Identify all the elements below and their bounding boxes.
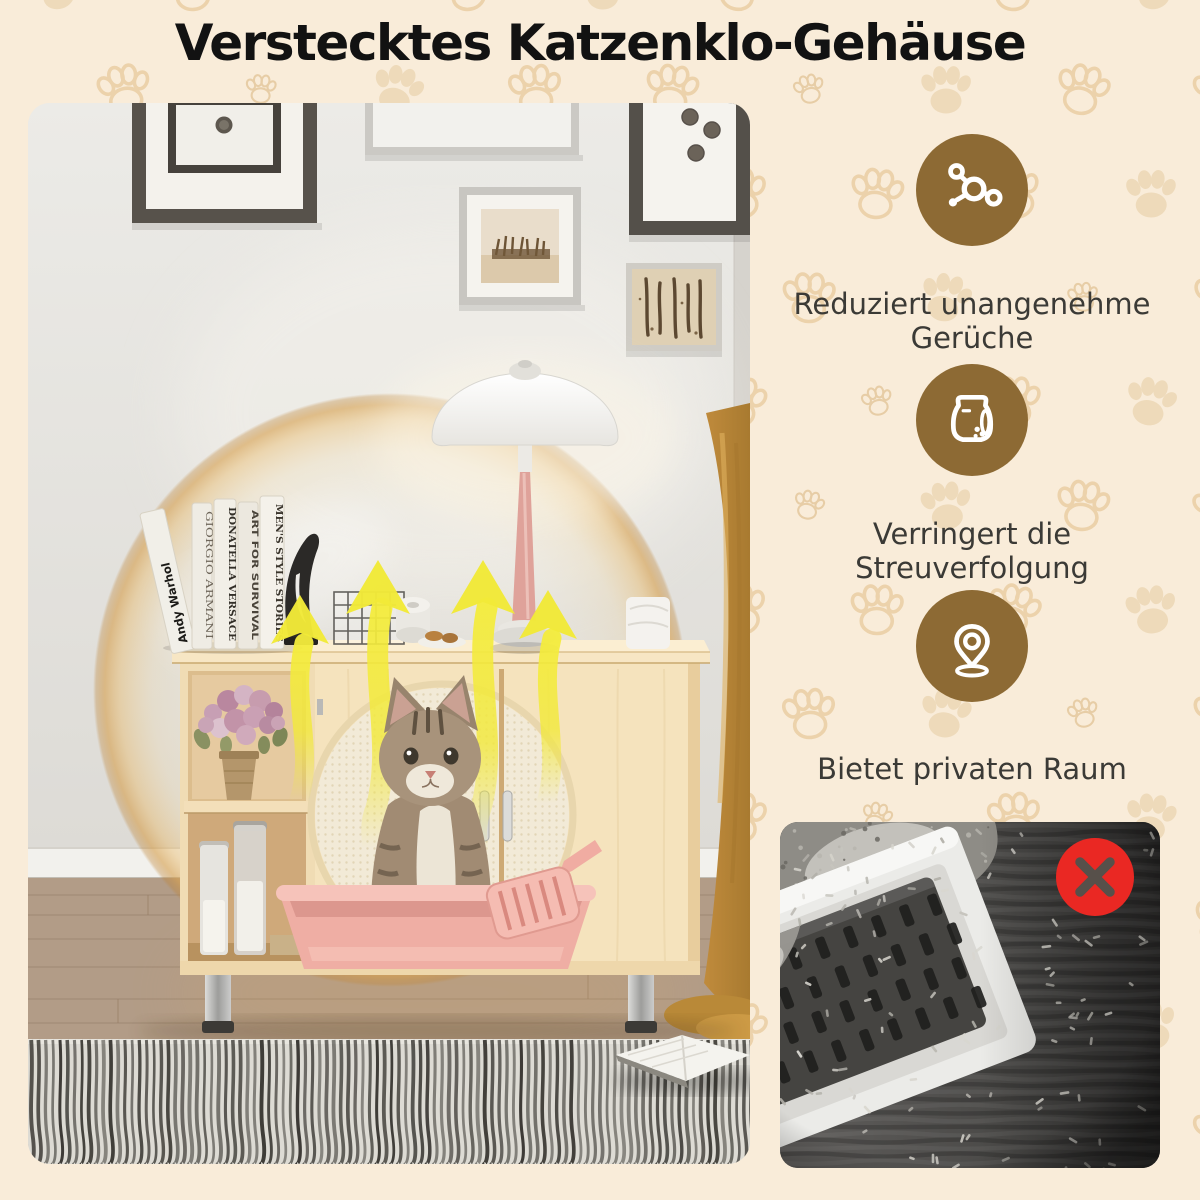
litter-scatter-svg <box>780 822 1160 1168</box>
book-spines: GIORGIO ARMANI DONATELLA VERSACE ART FOR… <box>192 496 284 649</box>
feature-line: Gerüche <box>911 321 1034 355</box>
litter-scatter-image <box>780 822 1160 1168</box>
product-scene-svg: Andy Warhol GIORGIO ARMANI DONATELLA VER… <box>28 103 750 1164</box>
tissue <box>626 597 670 649</box>
x-mark-badge <box>1056 838 1134 916</box>
frame-light-large <box>365 103 583 161</box>
feature-label-tracking: Verringert die Streuverfolgung <box>762 517 1182 585</box>
book-spine-title: DONATELLA VERSACE <box>226 507 237 641</box>
feature-line: Verringert die <box>873 517 1071 551</box>
frame-abstract <box>626 263 722 357</box>
feature-line: Bietet privaten Raum <box>817 752 1127 786</box>
page-title: Verstecktes Katzenklo-Gehäuse <box>0 14 1200 72</box>
frame-emblem <box>132 103 322 230</box>
feature-label-privacy: Bietet privaten Raum <box>762 752 1182 786</box>
book-spine-title: MEN'S STYLE STORIES <box>273 504 284 642</box>
book-spine-title: GIORGIO ARMANI <box>203 511 214 639</box>
frame-coins <box>629 103 750 242</box>
feature-line: Streuverfolgung <box>855 551 1089 585</box>
infographic-root: Verstecktes Katzenklo-Gehäuse <box>0 0 1200 1200</box>
litter-bag-icon <box>916 364 1028 476</box>
location-pin-icon <box>916 590 1028 702</box>
book-spine-title: ART FOR SURVIVAL <box>249 510 259 640</box>
feature-label-odor: Reduziert unangenehme Gerüche <box>762 287 1182 355</box>
frame-grass-photo <box>459 187 585 311</box>
feature-line: Reduziert unangenehme <box>794 287 1151 321</box>
odor-molecule-icon <box>916 134 1028 246</box>
product-scene-image: Andy Warhol GIORGIO ARMANI DONATELLA VER… <box>28 103 750 1164</box>
